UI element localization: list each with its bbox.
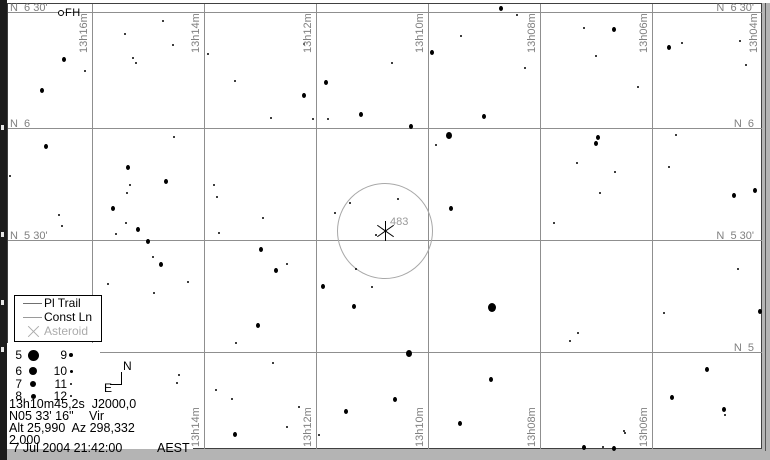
star — [215, 389, 217, 391]
star — [737, 268, 739, 270]
star — [359, 112, 363, 117]
star — [107, 283, 109, 285]
star — [612, 446, 616, 451]
dec-label-right: N 5 30' — [694, 230, 754, 242]
star — [172, 44, 174, 46]
star — [488, 303, 496, 312]
star — [663, 312, 665, 314]
magnitude-dot — [70, 383, 72, 385]
star — [446, 132, 452, 139]
star — [409, 124, 413, 129]
star — [44, 144, 48, 149]
star — [553, 222, 555, 224]
magnitude-dot — [28, 350, 39, 361]
star — [231, 398, 233, 400]
star — [334, 212, 336, 214]
edge-mark — [1, 347, 4, 352]
star — [595, 55, 597, 57]
star — [371, 286, 373, 288]
star — [115, 233, 117, 235]
star — [233, 432, 237, 437]
star — [458, 421, 462, 426]
star — [758, 309, 762, 314]
ra-label-bottom: 13h14m — [190, 401, 203, 447]
ra-grid-line — [652, 4, 653, 449]
star — [614, 171, 616, 173]
planet-trail-line-icon — [23, 303, 42, 304]
star — [135, 62, 137, 64]
star — [582, 445, 586, 450]
sky-field: 483 FH Pl Trail Const Ln Asteroid — [0, 0, 770, 460]
star — [321, 284, 325, 289]
star — [272, 362, 274, 364]
star-chart-window: 483 FH Pl Trail Const Ln Asteroid — [0, 0, 770, 460]
dec-label-left: N 5 30' — [10, 230, 48, 242]
star — [262, 217, 264, 219]
magnitude-dot — [29, 367, 37, 375]
dec-label-left: N 6 — [10, 118, 30, 130]
star — [136, 227, 140, 232]
star — [724, 414, 726, 416]
star — [623, 430, 625, 432]
star — [524, 67, 526, 69]
ra-grid-line — [204, 4, 205, 449]
star — [218, 232, 220, 234]
star — [312, 118, 314, 120]
star — [176, 382, 178, 384]
star — [602, 446, 604, 448]
star — [516, 14, 518, 16]
magnitude-dot — [30, 381, 36, 387]
star — [435, 144, 437, 146]
status-timezone: AEST — [157, 441, 190, 455]
star — [670, 395, 674, 400]
star — [302, 93, 306, 98]
star — [164, 179, 168, 184]
comet-circle-icon — [58, 10, 64, 16]
star — [612, 27, 616, 32]
star — [126, 165, 130, 170]
star — [489, 377, 493, 382]
star — [274, 268, 278, 273]
star — [146, 239, 150, 244]
star — [637, 86, 639, 88]
asteroid-x-icon — [28, 325, 40, 337]
star — [594, 141, 598, 146]
star — [234, 80, 236, 82]
ra-label-top: 13h06m — [638, 7, 651, 53]
star — [187, 281, 189, 283]
ra-label-bottom: 13h10m — [414, 401, 427, 447]
dec-label-right: N 6 — [694, 118, 754, 130]
star — [286, 263, 288, 265]
star — [126, 192, 128, 194]
ra-label-top: 13h10m — [414, 7, 427, 53]
star — [705, 367, 709, 372]
ra-label-top: 13h08m — [526, 7, 539, 53]
star — [129, 184, 131, 186]
star — [745, 64, 747, 66]
star — [62, 57, 66, 62]
star — [753, 188, 757, 193]
magnitude-dot — [69, 353, 73, 357]
star — [124, 33, 126, 35]
star — [173, 136, 175, 138]
star — [235, 342, 237, 344]
star — [125, 222, 127, 224]
star — [213, 184, 215, 186]
star — [298, 406, 300, 408]
star — [327, 118, 329, 120]
status-datetime: 7 Jul 2004 21:42:00AEST — [9, 441, 122, 455]
star — [449, 206, 453, 211]
star — [207, 53, 209, 55]
star — [624, 432, 626, 434]
star — [397, 198, 399, 200]
star — [569, 340, 571, 342]
magnitude-number: 5 — [10, 348, 22, 362]
dec-label-left: N 6 30' — [10, 2, 48, 14]
ra-label-bottom: 13h08m — [526, 401, 539, 447]
ra-grid-line — [316, 4, 317, 449]
star — [270, 117, 272, 119]
star — [576, 162, 578, 164]
compass-east-line — [110, 384, 122, 385]
star — [499, 6, 503, 11]
legend-box: Pl Trail Const Ln Asteroid — [14, 295, 102, 342]
dec-grid-line — [8, 128, 762, 129]
status-date-time: 7 Jul 2004 21:42:00 — [9, 441, 122, 455]
star — [352, 304, 356, 309]
legend-label: Asteroid — [44, 325, 88, 338]
star — [668, 166, 670, 168]
legend-label: Pl Trail — [44, 297, 81, 310]
star — [391, 62, 393, 64]
window-left-edge — [0, 0, 7, 460]
edge-mark — [1, 232, 4, 237]
constellation-line-icon — [23, 317, 42, 318]
dec-label-right: N 6 30' — [694, 2, 754, 14]
star — [355, 268, 357, 270]
star — [430, 50, 434, 55]
dec-grid-line — [100, 352, 762, 353]
edge-mark — [1, 300, 4, 305]
star — [375, 234, 377, 236]
star — [162, 20, 164, 22]
star — [344, 409, 348, 414]
ra-label-top: 13h12m — [302, 7, 315, 53]
star — [9, 175, 11, 177]
star — [58, 214, 60, 216]
star — [577, 332, 579, 334]
star — [675, 134, 677, 136]
star — [681, 42, 683, 44]
star — [324, 80, 328, 85]
star — [153, 292, 155, 294]
star — [61, 225, 63, 227]
star — [583, 27, 585, 29]
star — [216, 196, 218, 198]
asteroid-483-label: 483 — [390, 216, 408, 228]
star — [286, 426, 288, 428]
star — [482, 114, 486, 119]
star — [152, 256, 154, 258]
star — [259, 247, 263, 252]
star — [256, 323, 260, 328]
star — [159, 262, 163, 267]
star — [40, 88, 44, 93]
star — [318, 434, 320, 436]
star — [722, 407, 726, 412]
ra-label-top: 13h16m — [78, 7, 91, 53]
star — [178, 374, 180, 376]
star — [667, 45, 671, 50]
star — [599, 192, 601, 194]
magnitude-number: 10 — [50, 364, 67, 378]
legend-label: Const Ln — [44, 311, 92, 324]
star — [460, 35, 462, 37]
ra-label-top: 13h14m — [190, 7, 203, 53]
magnitude-number: 9 — [50, 348, 67, 362]
edge-mark — [1, 125, 4, 130]
star — [111, 206, 115, 211]
star — [739, 40, 741, 42]
magnitude-number: 6 — [10, 364, 22, 378]
ra-grid-line — [540, 4, 541, 449]
ra-label-bottom: 13h12m — [302, 401, 315, 447]
magnitude-dot — [70, 370, 73, 373]
star — [349, 202, 351, 204]
star — [732, 193, 736, 198]
star — [393, 397, 397, 402]
dec-label-right: N 5 — [694, 342, 754, 354]
star — [84, 70, 86, 72]
star — [132, 57, 134, 59]
compass-north-label: N — [123, 359, 132, 373]
ra-label-bottom: 13h06m — [638, 401, 651, 447]
star — [406, 350, 412, 357]
star — [596, 135, 600, 140]
